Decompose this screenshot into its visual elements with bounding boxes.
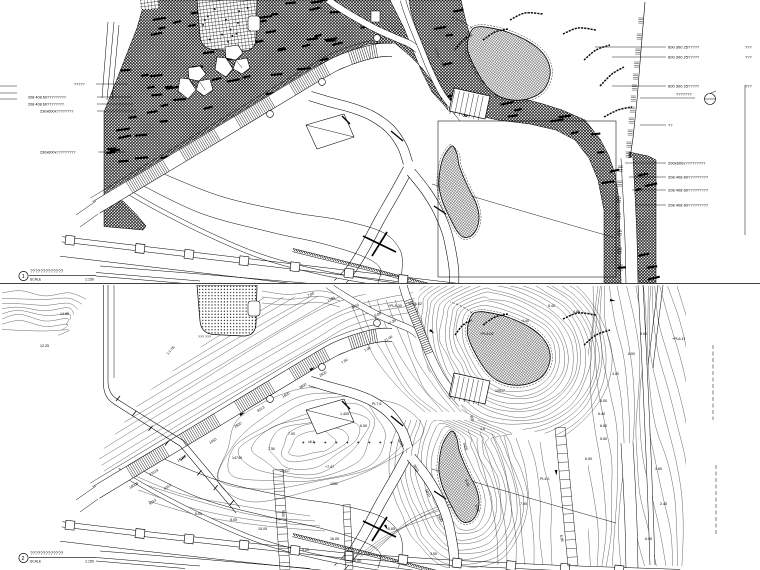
svg-text:6.50: 6.50: [585, 457, 592, 461]
svg-text:1.405: 1.405: [340, 412, 349, 416]
svg-text:+PL4.02: +PL4.02: [480, 332, 494, 336]
svg-text:6.40: 6.40: [598, 412, 605, 416]
svg-text:10517: 10517: [495, 389, 505, 393]
svg-text:8.00: 8.00: [628, 352, 635, 356]
svg-text:7.05: 7.05: [520, 502, 527, 506]
svg-text:14.85: 14.85: [60, 312, 69, 316]
svg-text:7.50: 7.50: [268, 447, 275, 451]
svg-text:9.00: 9.00: [640, 332, 647, 336]
svg-text:x6.1: x6.1: [308, 440, 315, 444]
svg-text:2: 2: [22, 556, 25, 562]
svg-text:10417: 10417: [280, 469, 290, 473]
svg-text:???: ???: [745, 55, 752, 60]
svg-text:230x600x????????: 230x600x????????: [40, 109, 73, 113]
svg-text:???: ???: [745, 84, 752, 89]
svg-text:230x600x?????????: 230x600x?????????: [40, 150, 75, 154]
svg-text:208 408 60?????????: 208 408 60?????????: [668, 203, 709, 208]
svg-text:200x600x?????????: 200x600x?????????: [668, 161, 706, 166]
svg-text:PL4.0: PL4.0: [540, 477, 549, 481]
svg-text:208 408 60????????: 208 408 60????????: [28, 102, 64, 106]
svg-text:+PLA.30: +PLA.30: [388, 304, 402, 308]
svg-text:6.00: 6.00: [600, 399, 607, 403]
svg-text:5.65: 5.65: [388, 527, 395, 531]
svg-text:5.50: 5.50: [600, 437, 607, 441]
svg-text:+PLA.02: +PLA.02: [408, 302, 422, 306]
svg-text:5.05: 5.05: [302, 548, 309, 552]
svg-text:SCALE: SCALE: [30, 560, 42, 564]
svg-text:5.05: 5.05: [195, 512, 202, 516]
svg-text:2.45: 2.45: [660, 502, 667, 506]
svg-text:15.05: 15.05: [258, 527, 267, 531]
svg-text:208 408 60?????????: 208 408 60?????????: [28, 95, 66, 99]
svg-text:+PL6.47: +PL6.47: [672, 337, 686, 341]
svg-text:6.05: 6.05: [645, 537, 652, 541]
svg-text:16.05: 16.05: [330, 537, 339, 541]
svg-text:?????????????: ?????????????: [30, 551, 64, 556]
svg-text:1:150: 1:150: [85, 560, 94, 564]
svg-text:6.50: 6.50: [360, 424, 367, 428]
svg-text:SCALE: SCALE: [30, 278, 42, 282]
svg-text:7.00: 7.00: [288, 432, 295, 436]
svg-text:208 408 60?????????: 208 408 60?????????: [668, 175, 709, 180]
svg-text:14749: 14749: [232, 456, 242, 460]
svg-text:4.80: 4.80: [573, 310, 580, 314]
svg-text:PL7.6: PL7.6: [372, 402, 381, 406]
svg-text:5.05: 5.05: [281, 510, 285, 517]
svg-text:???: ???: [745, 45, 752, 50]
svg-text:1:150: 1:150: [85, 278, 94, 282]
svg-text:?????????????: ?????????????: [30, 269, 64, 274]
svg-text:12.25: 12.25: [40, 344, 49, 348]
svg-text:4.6: 4.6: [480, 427, 485, 431]
svg-text:600 300 25?????: 600 300 25?????: [668, 55, 700, 60]
svg-text:16.00: 16.00: [352, 559, 361, 563]
svg-text:4.40: 4.40: [522, 319, 529, 323]
svg-text:1: 1: [22, 274, 25, 280]
svg-text:6.80: 6.80: [600, 424, 607, 428]
svg-text:4.00: 4.00: [612, 372, 619, 376]
svg-text:+7.47: +7.47: [325, 465, 334, 469]
svg-text:???????: ???????: [676, 92, 692, 97]
svg-text:8.05: 8.05: [230, 518, 237, 522]
svg-text:208 408 60?????????: 208 408 60?????????: [668, 188, 709, 193]
svg-text:5.40: 5.40: [548, 304, 555, 308]
svg-text:??: ??: [668, 123, 673, 128]
svg-text:600 300 25?????: 600 300 25?????: [668, 84, 700, 89]
svg-text:??? ???: ??? ???: [198, 335, 211, 339]
svg-text:?????: ?????: [74, 82, 85, 86]
svg-text:600 300 25?????: 600 300 25?????: [668, 45, 700, 50]
svg-text:1050: 1050: [330, 482, 338, 486]
svg-text:3.50: 3.50: [430, 552, 437, 556]
svg-text:3.60: 3.60: [655, 467, 662, 471]
